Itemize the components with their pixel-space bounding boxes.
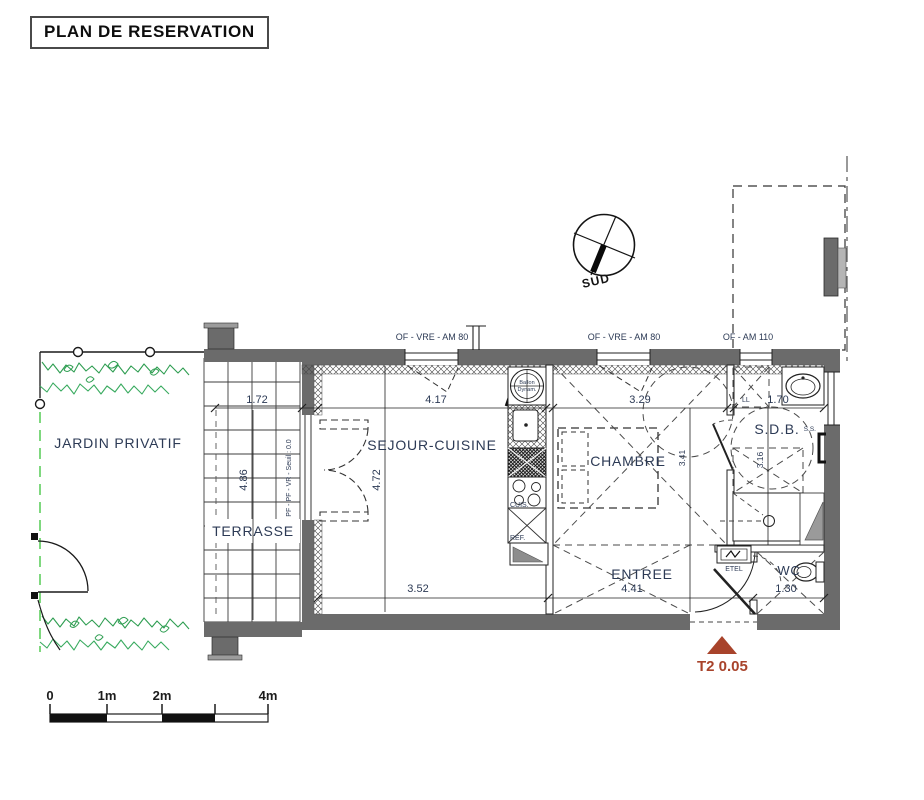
dim-terrasse-width: 1.72	[246, 394, 267, 406]
hedge-scribble	[42, 362, 189, 375]
window-chambre	[597, 349, 650, 365]
dim-terrasse-depth: 4.86	[238, 469, 250, 490]
gate-hinge	[31, 533, 38, 540]
scale-2m: 2m	[153, 688, 172, 703]
towel-dryer-label: S.S.	[804, 426, 816, 433]
dim-chambre-width: 3.29	[629, 394, 650, 406]
scale-1m: 1m	[98, 688, 117, 703]
floor-plan-svg: SUD	[0, 0, 924, 800]
lot-label: T2 0.05	[697, 658, 748, 675]
sink-drain	[524, 423, 528, 427]
toilet-tank	[816, 562, 824, 582]
window-opening	[824, 372, 840, 425]
hedge-scribble	[42, 616, 189, 629]
scale-segment-black	[162, 714, 215, 722]
kitchen-fixtures: Ballon Dynam. CUIS. REF.	[508, 367, 548, 565]
dim-sejour-depth: 4.72	[371, 469, 383, 490]
pillow	[562, 432, 588, 466]
exterior-wall-bottom	[302, 614, 840, 630]
window-opening	[740, 349, 772, 365]
terrace-threshold-note: PF - PF - VR - Seuil : 0.0	[286, 439, 293, 517]
french-door-swing	[320, 420, 368, 521]
door-opening	[302, 415, 314, 520]
water-heater-label-1: Ballon	[519, 380, 534, 386]
french-door-opening	[302, 415, 314, 520]
terrace-pillar-top	[208, 327, 234, 349]
washing-machine-label: LL	[742, 397, 750, 404]
neighbor-wall-block	[824, 238, 838, 296]
fridge-label: REF.	[510, 535, 525, 542]
terrace-bottom-wall	[204, 622, 302, 637]
dim-entree-width: 4.41	[621, 583, 642, 595]
insulation-strip-top	[302, 365, 824, 374]
gate-hinge	[31, 592, 38, 599]
exterior-wall-left-upper	[302, 349, 314, 415]
window-opening	[597, 349, 650, 365]
door-arc	[324, 470, 368, 512]
scale-segment-black	[50, 714, 107, 722]
window-sejour	[405, 349, 458, 365]
fence-post	[146, 348, 155, 357]
dim-sdb-depth: 3.16	[755, 451, 765, 468]
jardin-privatif: JARDIN PRIVATIF	[31, 348, 204, 653]
window-label-sdb: OF - AM 110	[723, 332, 773, 342]
room-label-sejour: SEJOUR-CUISINE	[367, 437, 496, 453]
partition-sejour-chambre	[546, 365, 553, 614]
electrical-panel-label: ETEL	[725, 566, 743, 573]
room-label-jardin: JARDIN PRIVATIF	[54, 435, 181, 451]
compass-south-pointer	[593, 245, 604, 272]
sdb-door-arc	[713, 420, 733, 424]
hedge-scribble	[40, 383, 169, 394]
scale-0: 0	[46, 688, 53, 703]
insulation-strip-left-lower	[314, 520, 322, 614]
dim-sejour-bottom: 3.52	[407, 583, 428, 595]
room-label-wc: WC	[777, 563, 800, 578]
terrace-pillar-base	[208, 655, 242, 660]
scale-bar: 0 1m 2m 4m	[46, 688, 277, 722]
terrace-pillar-bottom	[212, 637, 238, 656]
vent-flue	[466, 326, 486, 350]
window-label-sejour: OF - VRE - AM 80	[396, 332, 469, 342]
dim-chambre-depth: 3.41	[677, 449, 687, 466]
fence-post	[74, 348, 83, 357]
door-arc	[324, 429, 368, 470]
water-heater-label-2: Dynam.	[518, 387, 537, 393]
dim-wc-width: 1.30	[775, 583, 796, 595]
window-opening	[405, 349, 458, 365]
window-sdb	[740, 349, 772, 365]
compass-south-label: SUD	[581, 271, 612, 291]
lot-marker: T2 0.05	[697, 636, 748, 675]
room-label-entree: ENTREE	[611, 566, 673, 582]
floor-plan-page: PLAN DE RESERVATION SUD	[0, 0, 924, 800]
room-label-sdb: S.D.B.	[754, 421, 799, 437]
entrance-arrow	[707, 636, 737, 654]
window-right-wall	[824, 372, 840, 425]
neighbor-wall-block-2	[838, 248, 846, 288]
turning-circle-chambre	[643, 367, 733, 457]
fence-post	[36, 400, 45, 409]
scale-4m: 4m	[259, 688, 278, 703]
terrace-top-wall	[204, 349, 302, 362]
terrace-pillar-cap	[204, 323, 238, 328]
basin-faucet	[801, 376, 804, 379]
room-label-chambre: CHAMBRE	[590, 453, 666, 469]
window-label-chambre: OF - VRE - AM 80	[588, 332, 661, 342]
gate-swing-arc	[38, 541, 88, 591]
dim-sejour-width: 4.17	[425, 394, 446, 406]
door-leaf-top	[320, 420, 368, 429]
door-leaf-bottom	[320, 512, 368, 521]
dim-sdb-width: 1.70	[767, 394, 788, 406]
compass: SUD	[574, 215, 636, 291]
entrance-door-leaf	[714, 569, 755, 614]
exterior-wall-left-lower	[302, 520, 314, 630]
pillow	[562, 470, 588, 503]
scale-ticks	[50, 704, 268, 714]
